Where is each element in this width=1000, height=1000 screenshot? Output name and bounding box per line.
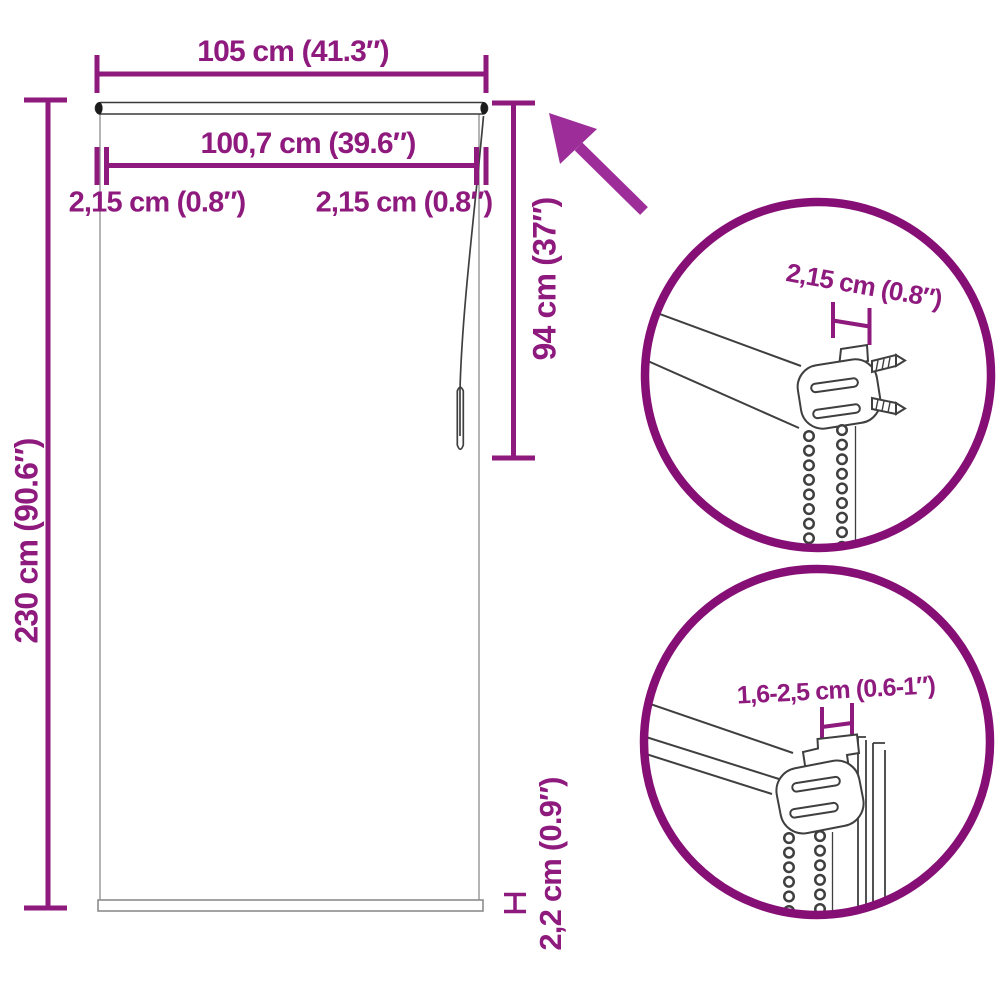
- chain-drop-label: 94 cm (37″): [527, 197, 564, 360]
- roller-end-cap-left: [95, 102, 102, 114]
- total-height-label: 230 cm (90.6″): [9, 438, 46, 643]
- fabric-width-label: 100,7 cm (39.6″): [200, 127, 415, 161]
- left-end-gap-label: 2,15 cm (0.8″): [69, 187, 246, 220]
- roller-blind-dimension-diagram: 105 cm (41.3″) 100,7 cm (39.6″) 2,15 cm …: [0, 0, 1000, 1000]
- detail-top-dimension: [833, 302, 870, 345]
- bead-chain: [809, 426, 856, 552]
- clamp-body: [772, 757, 867, 838]
- blind-fabric: [100, 108, 479, 902]
- roller-blind-front-view: [95, 102, 487, 911]
- total-width-label: 105 cm (41.3″): [197, 35, 389, 69]
- right-end-gap-label: 2,15 cm (0.8″): [316, 187, 493, 220]
- bead-chain: [789, 832, 833, 918]
- bottom-bar-dimension: [504, 895, 526, 912]
- roller-tube: [96, 103, 488, 115]
- diagram-line-art: [0, 0, 1000, 1000]
- bottom-bar: [98, 900, 483, 911]
- bottom-bar-height-label: 2,2 cm (0.9″): [533, 777, 569, 950]
- up-left-arrow-icon: [549, 113, 644, 211]
- roller-tube-perspective: [632, 306, 801, 428]
- detail-circle-top: [632, 202, 991, 552]
- window-frame-profile: [858, 737, 885, 910]
- end-cap-body: [794, 356, 883, 432]
- screw-icon: [872, 355, 905, 372]
- roller-end-cap-right: [480, 102, 487, 114]
- detail-circle-bottom: [624, 569, 990, 918]
